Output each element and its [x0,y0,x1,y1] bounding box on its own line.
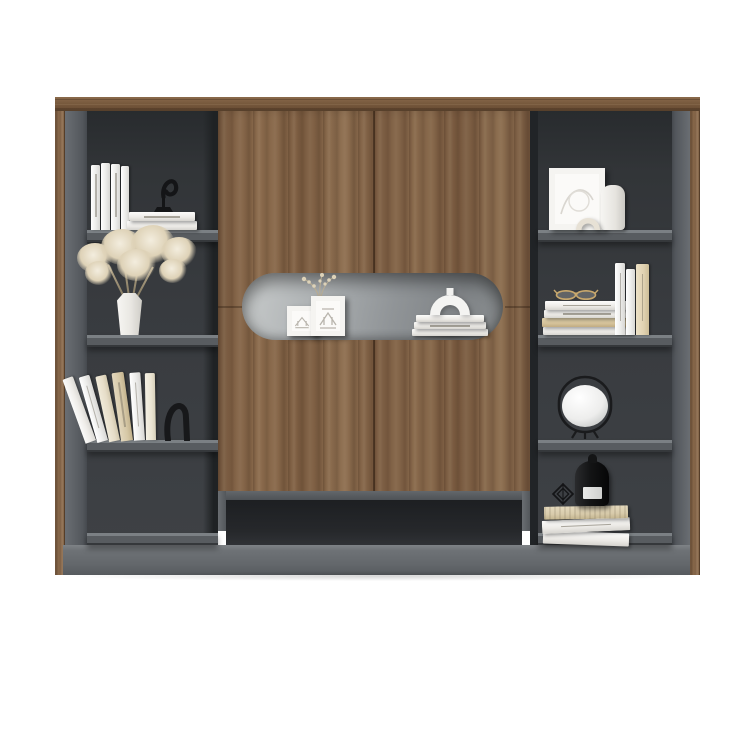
left-shelf-column [65,111,218,545]
wire-globe-lamp [550,374,620,440]
display-niche [242,273,503,340]
book-spine [91,165,100,230]
book-stack [414,322,486,329]
book-spine [626,269,635,335]
right-bay-shadow-edge [530,111,538,545]
arch-object [573,208,603,230]
book-spine [101,163,110,230]
shelf-board [538,440,672,452]
product-photo [0,0,750,750]
flower-puff [85,261,113,285]
faceted-vase [117,293,142,335]
shelf-board [538,335,672,347]
book-spine [615,263,625,335]
open-compartment [226,500,522,545]
book-stack [544,505,628,519]
shelf-board [87,335,218,347]
book-stack [416,315,484,322]
book-stack [412,329,488,336]
shelf-board [87,440,218,452]
right-shelf-column [530,111,690,545]
left-side-panel [65,111,87,545]
mini-framed-print [311,296,345,336]
center-cabinet [218,111,530,505]
cylinder-vase [601,185,625,230]
open-compartment-shelf [226,491,522,500]
shelf-board [87,533,218,545]
hook-sculpture [145,166,181,213]
book-spine [636,264,649,335]
cabinet-support-post [522,491,530,531]
bell-candle-jar [575,461,609,506]
bookshelf-unit [55,97,700,575]
ground-shadow [67,571,688,581]
right-side-panel [672,111,690,545]
cabinet-support-post [218,491,226,531]
flower-puff [117,249,157,281]
left-walnut-stile [55,97,65,575]
wire-diamond-ornament [550,481,576,507]
book-stack [129,212,195,221]
curved-bookend [159,375,191,441]
candle-label [583,487,602,499]
book-spine [145,373,156,440]
candle-knob [588,454,597,463]
door-joint-line [505,306,530,308]
arch-sculpture [428,288,472,315]
right-walnut-stile [690,97,700,575]
book-spine [111,164,120,230]
shelf-board [538,230,672,242]
gold-glasses [553,287,599,301]
left-bay-shadow-edge [203,111,218,545]
door-joint-line [218,306,242,308]
top-panel [55,97,700,111]
flower-puff [159,259,187,283]
